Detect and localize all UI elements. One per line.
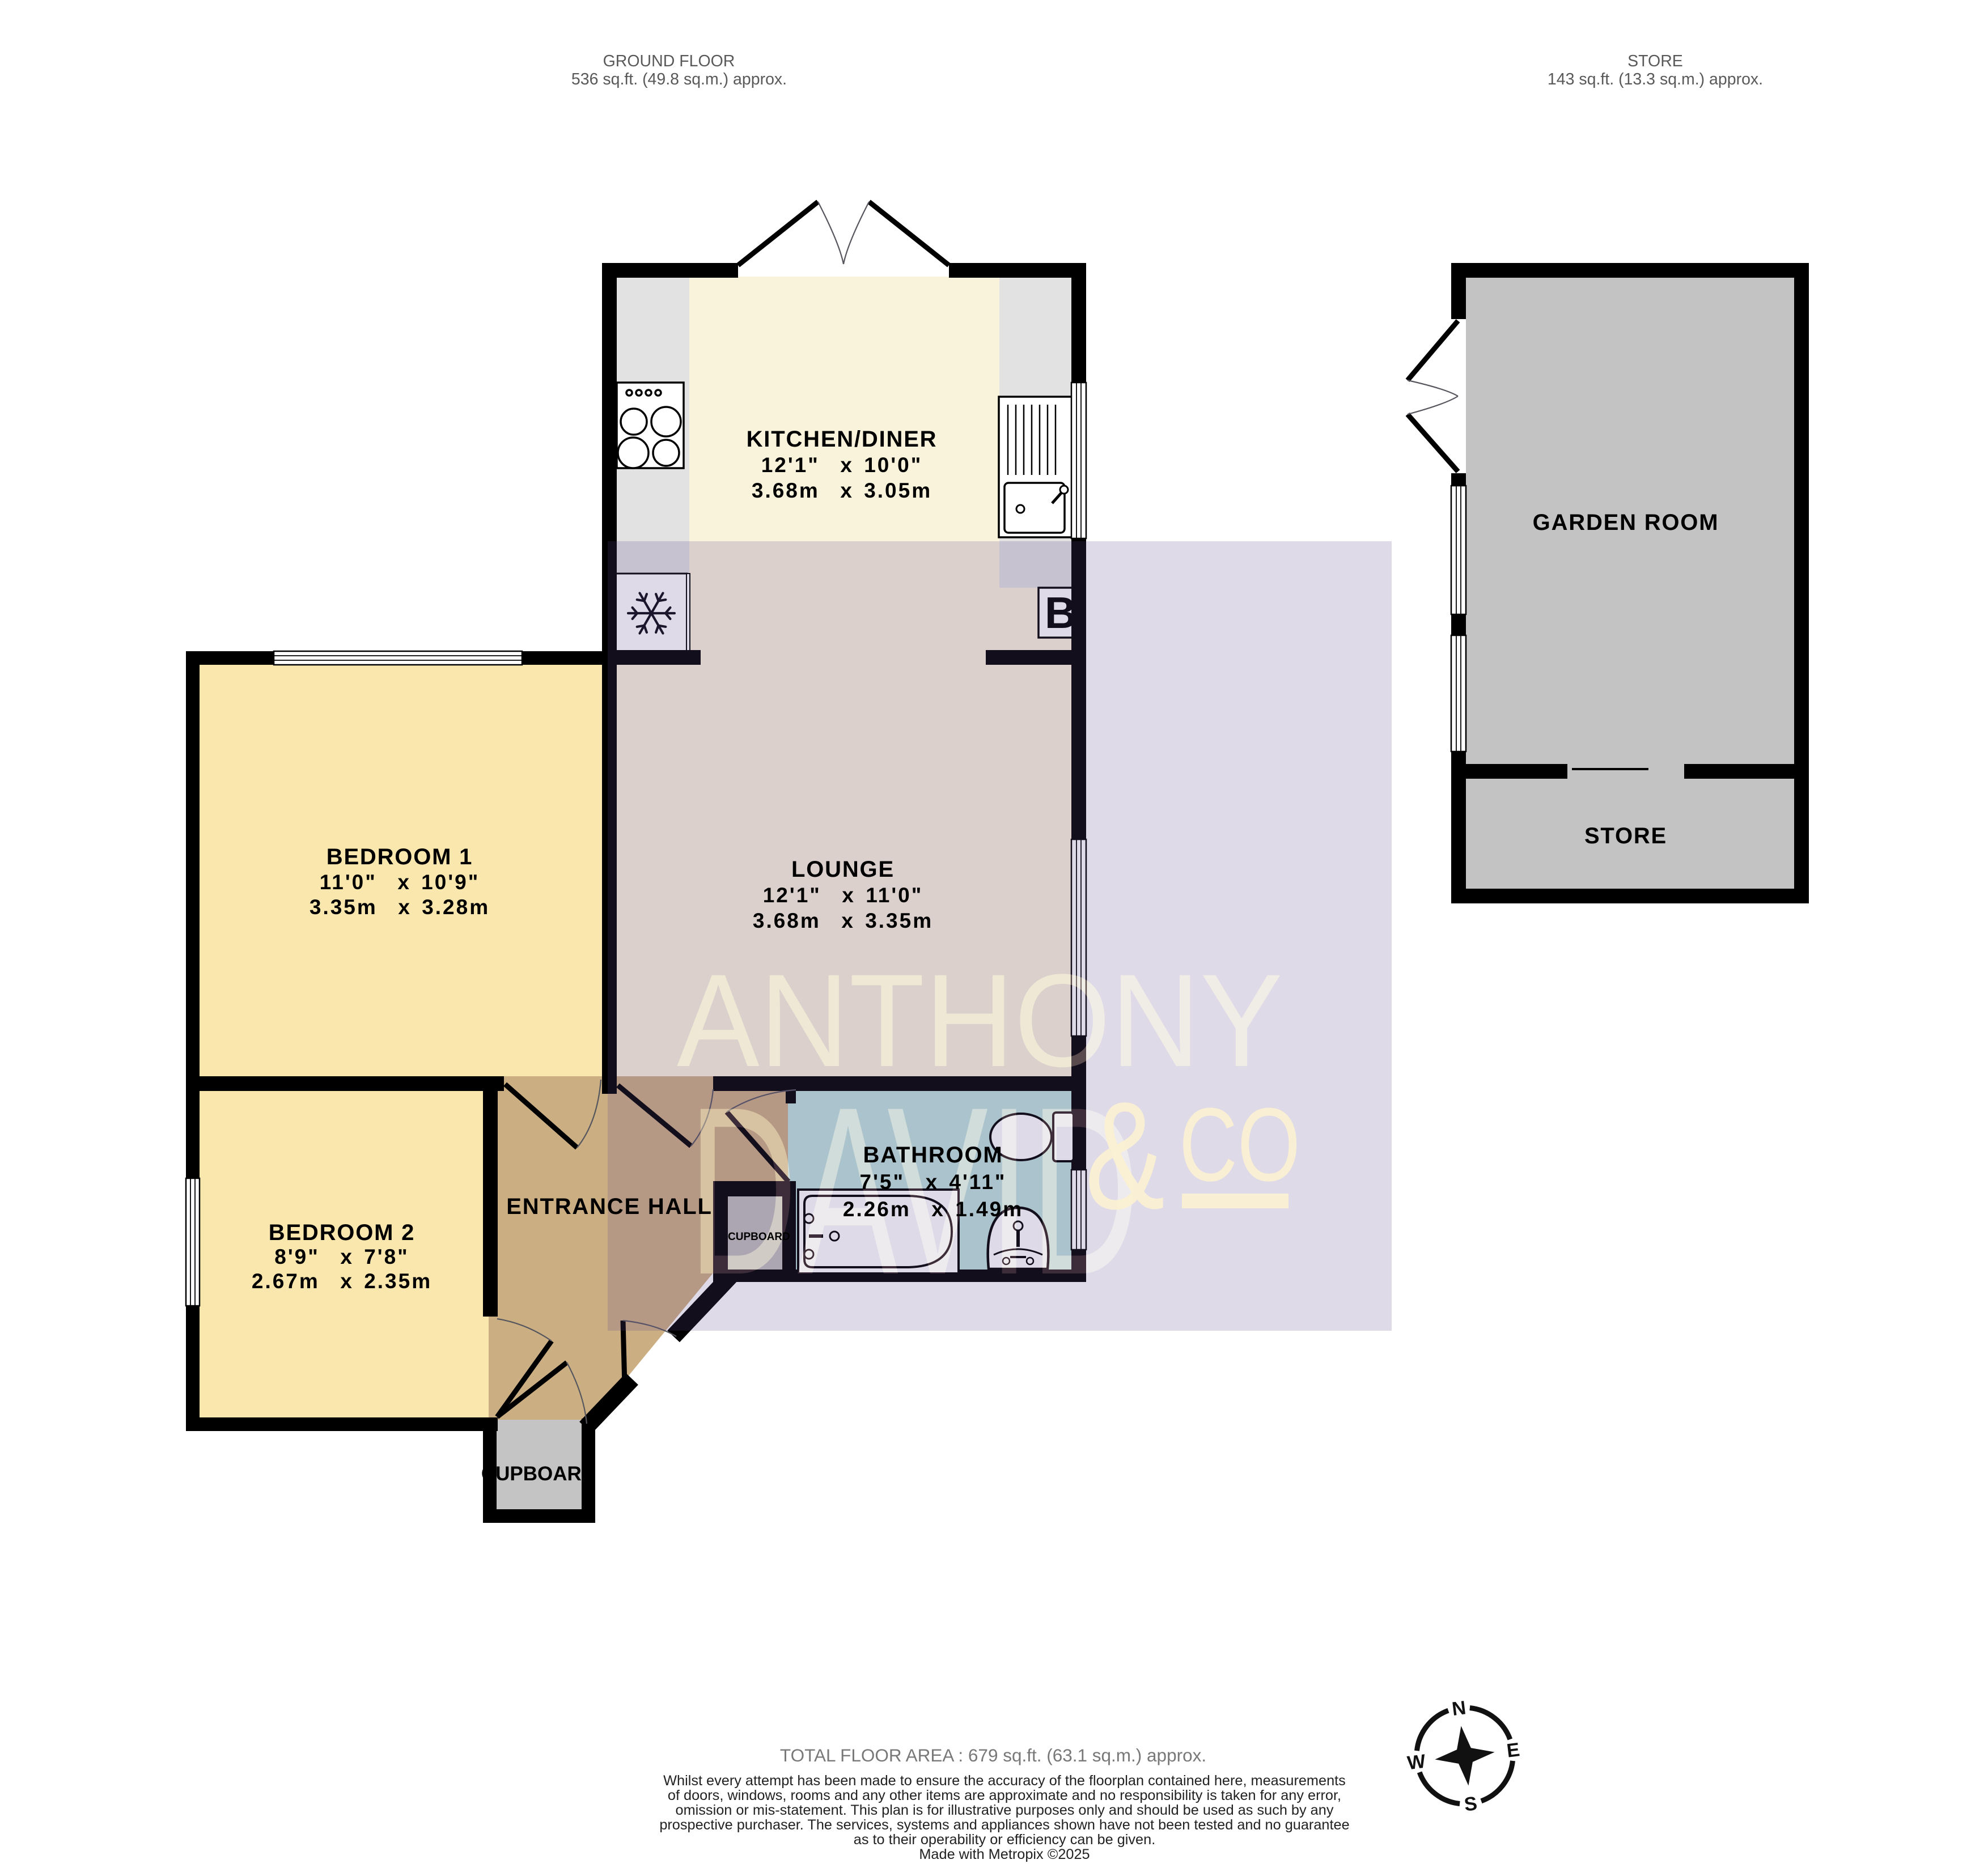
- svg-text:ENTRANCE HALL: ENTRANCE HALL: [506, 1194, 712, 1219]
- svg-text:3.68m x 3.05m: 3.68m x 3.05m: [752, 479, 932, 502]
- svg-text:12'1" x 10'0": 12'1" x 10'0": [761, 453, 923, 477]
- svg-text:BATHROOM: BATHROOM: [863, 1143, 1003, 1167]
- svg-text:STORE: STORE: [1627, 52, 1683, 70]
- svg-text:TOTAL FLOOR AREA : 679 sq.ft.: TOTAL FLOOR AREA : 679 sq.ft. (63.1 sq.m…: [780, 1745, 1206, 1765]
- svg-text:prospective purchaser. The ser: prospective purchaser. The services, sys…: [659, 1817, 1349, 1833]
- svg-text:Made with Metropix ©2025: Made with Metropix ©2025: [919, 1846, 1090, 1862]
- svg-text:BEDROOM 1: BEDROOM 1: [327, 844, 473, 869]
- svg-text:omission or mis-statement. Thi: omission or mis-statement. This plan is …: [676, 1802, 1334, 1818]
- svg-text:536 sq.ft. (49.8 sq.m.) approx: 536 sq.ft. (49.8 sq.m.) approx.: [571, 70, 787, 88]
- svg-text:LOUNGE: LOUNGE: [791, 857, 895, 882]
- svg-text:GARDEN ROOM: GARDEN ROOM: [1533, 510, 1719, 535]
- svg-text:KITCHEN/DINER: KITCHEN/DINER: [747, 427, 938, 452]
- svg-text:GROUND FLOOR: GROUND FLOOR: [603, 52, 735, 70]
- svg-text:2.67m x 2.35m: 2.67m x 2.35m: [252, 1270, 432, 1293]
- svg-text:Whilst every attempt has been: Whilst every attempt has been made to en…: [663, 1773, 1346, 1789]
- svg-text:7'5" x 4'11": 7'5" x 4'11": [860, 1170, 1007, 1194]
- svg-text:CO: CO: [1179, 1086, 1300, 1203]
- svg-text:2.26m x 1.49m: 2.26m x 1.49m: [843, 1198, 1023, 1221]
- svg-text:3.68m x 3.35m: 3.68m x 3.35m: [753, 909, 933, 932]
- svg-text:3.35m x 3.28m: 3.35m x 3.28m: [310, 895, 490, 919]
- svg-text:S: S: [1463, 1793, 1478, 1815]
- svg-text:12'1" x 11'0": 12'1" x 11'0": [763, 884, 923, 907]
- svg-text:W: W: [1406, 1751, 1427, 1774]
- svg-text:as to their operability or eff: as to their operability or efficiency ca…: [854, 1832, 1155, 1848]
- svg-text:of doors, windows, rooms and a: of doors, windows, rooms and any other i…: [668, 1788, 1341, 1803]
- svg-text:8'9" x 7'8": 8'9" x 7'8": [274, 1245, 409, 1268]
- svg-text:STORE: STORE: [1584, 823, 1667, 848]
- svg-text:N: N: [1451, 1697, 1467, 1720]
- svg-text:11'0" x 10'9": 11'0" x 10'9": [320, 871, 480, 894]
- svg-text:E: E: [1506, 1739, 1521, 1761]
- svg-text:&: &: [1085, 1071, 1165, 1241]
- svg-text:CUPBOARD: CUPBOARD: [728, 1231, 790, 1243]
- svg-text:CUPBOARD: CUPBOARD: [481, 1463, 596, 1485]
- svg-text:BEDROOM 2: BEDROOM 2: [269, 1220, 415, 1245]
- svg-text:143 sq.ft. (13.3 sq.m.) approx: 143 sq.ft. (13.3 sq.m.) approx.: [1548, 70, 1763, 88]
